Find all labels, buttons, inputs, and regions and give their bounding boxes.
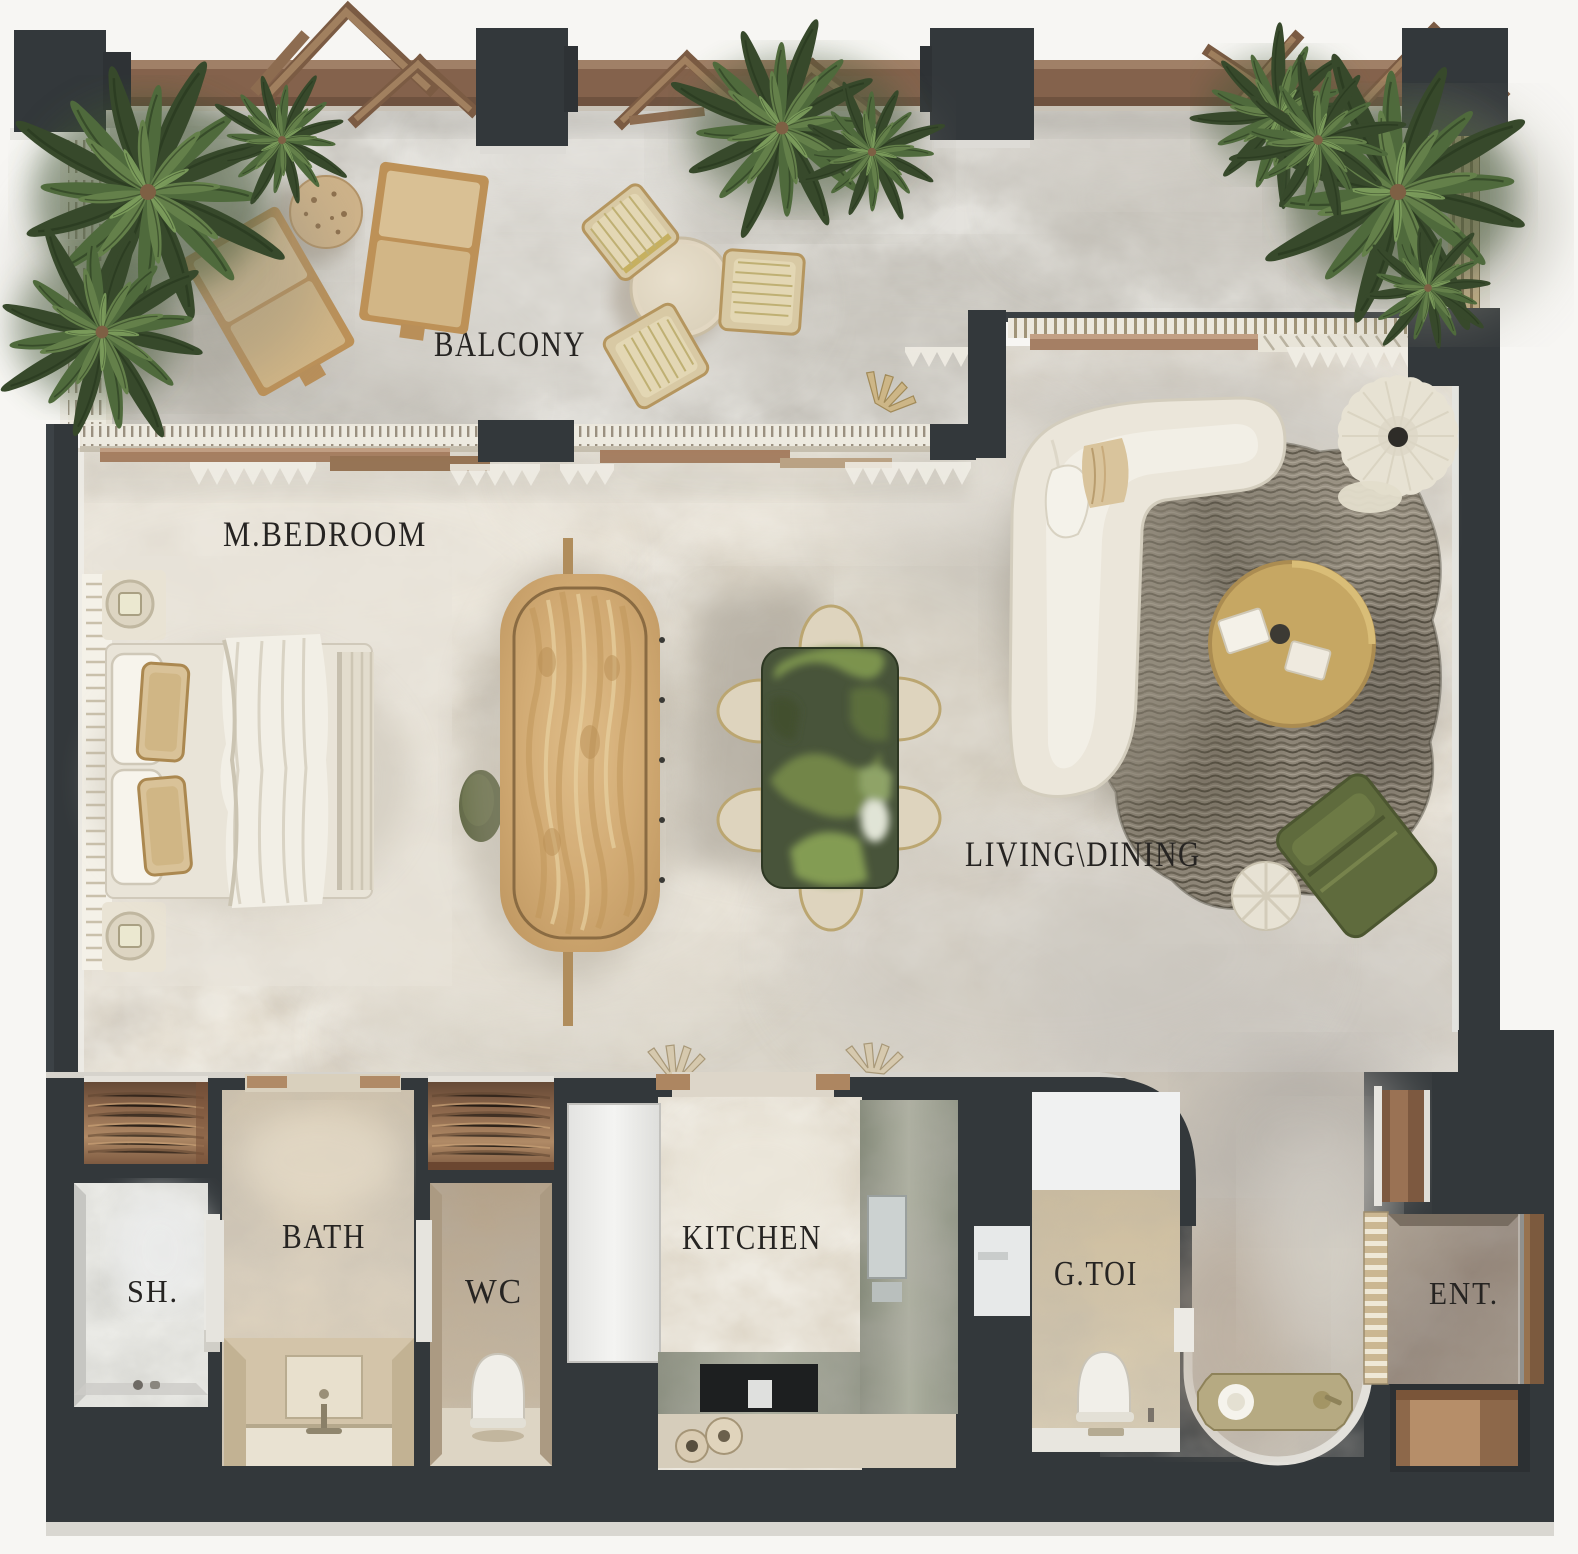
svg-text:SH.: SH. <box>127 1273 179 1309</box>
svg-text:G.TOI: G.TOI <box>1054 1254 1138 1293</box>
svg-text:BATH: BATH <box>282 1217 366 1256</box>
svg-text:ENT.: ENT. <box>1429 1275 1499 1311</box>
svg-text:M.BEDROOM: M.BEDROOM <box>223 514 427 554</box>
svg-text:WC: WC <box>465 1272 523 1311</box>
svg-text:LIVING\DINING: LIVING\DINING <box>965 834 1201 874</box>
svg-text:KITCHEN: KITCHEN <box>682 1218 822 1257</box>
